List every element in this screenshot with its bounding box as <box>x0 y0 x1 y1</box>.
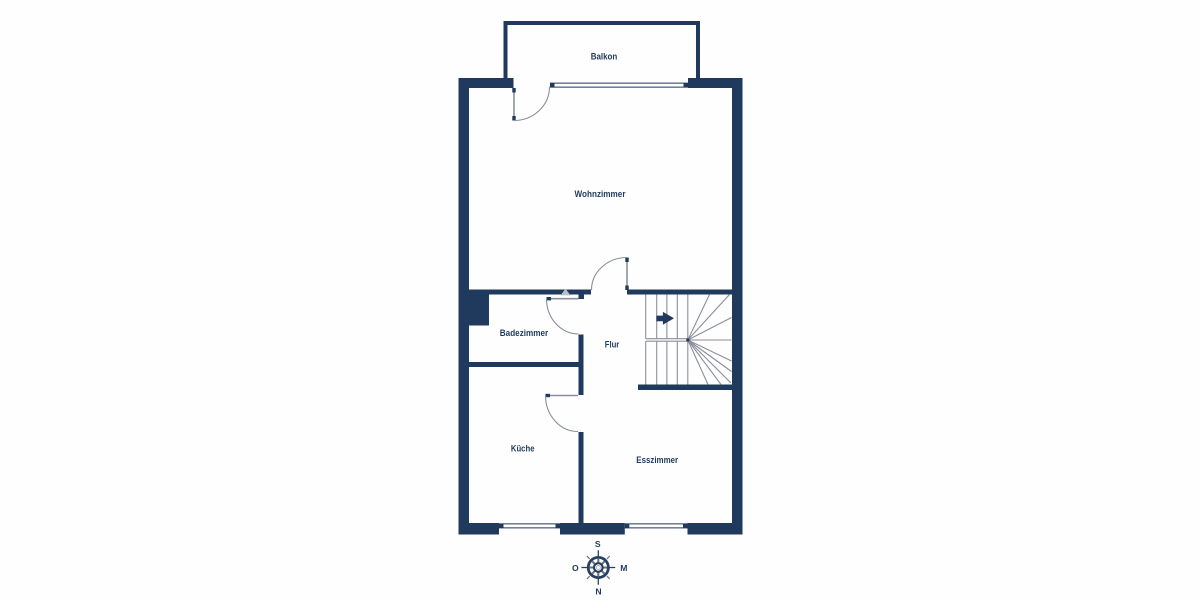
svg-text:Küche: Küche <box>511 444 535 455</box>
svg-text:Badezimmer: Badezimmer <box>500 328 549 339</box>
svg-text:M: M <box>620 563 627 573</box>
svg-text:O: O <box>572 563 579 573</box>
svg-text:Wohnzimmer: Wohnzimmer <box>575 189 626 200</box>
svg-text:Flur: Flur <box>605 340 620 351</box>
svg-text:Esszimmer: Esszimmer <box>636 455 678 466</box>
svg-text:Balkon: Balkon <box>591 51 618 62</box>
svg-text:N: N <box>595 586 601 596</box>
svg-text:S: S <box>595 539 601 549</box>
